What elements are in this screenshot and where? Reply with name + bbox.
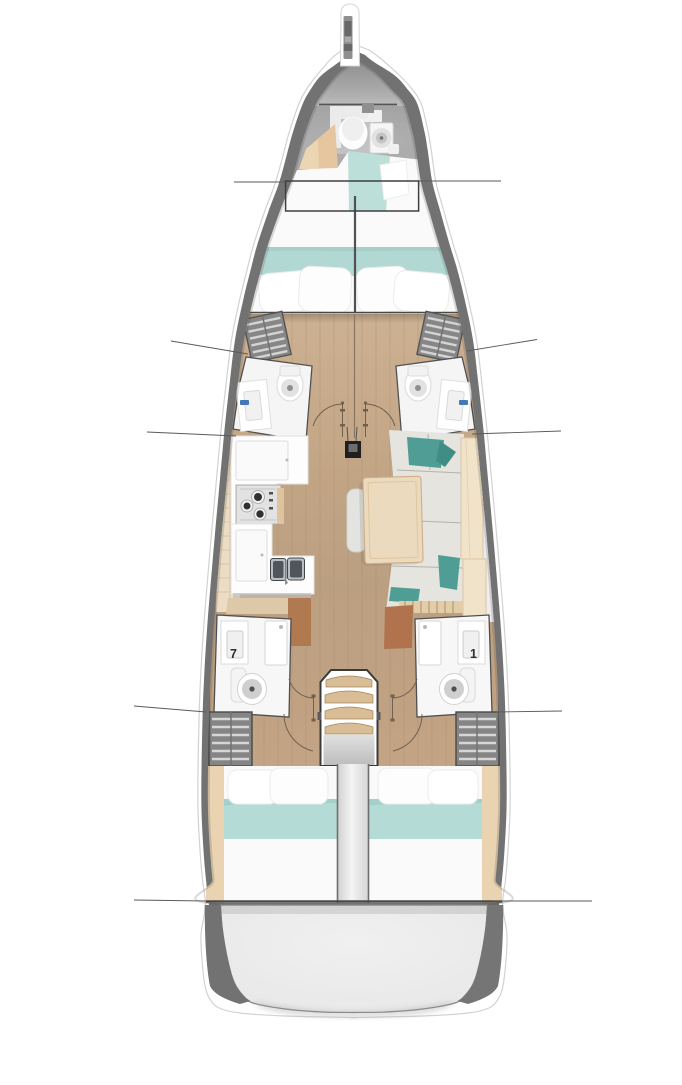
svg-text:1: 1 xyxy=(470,647,477,661)
svg-text:7: 7 xyxy=(230,647,237,661)
